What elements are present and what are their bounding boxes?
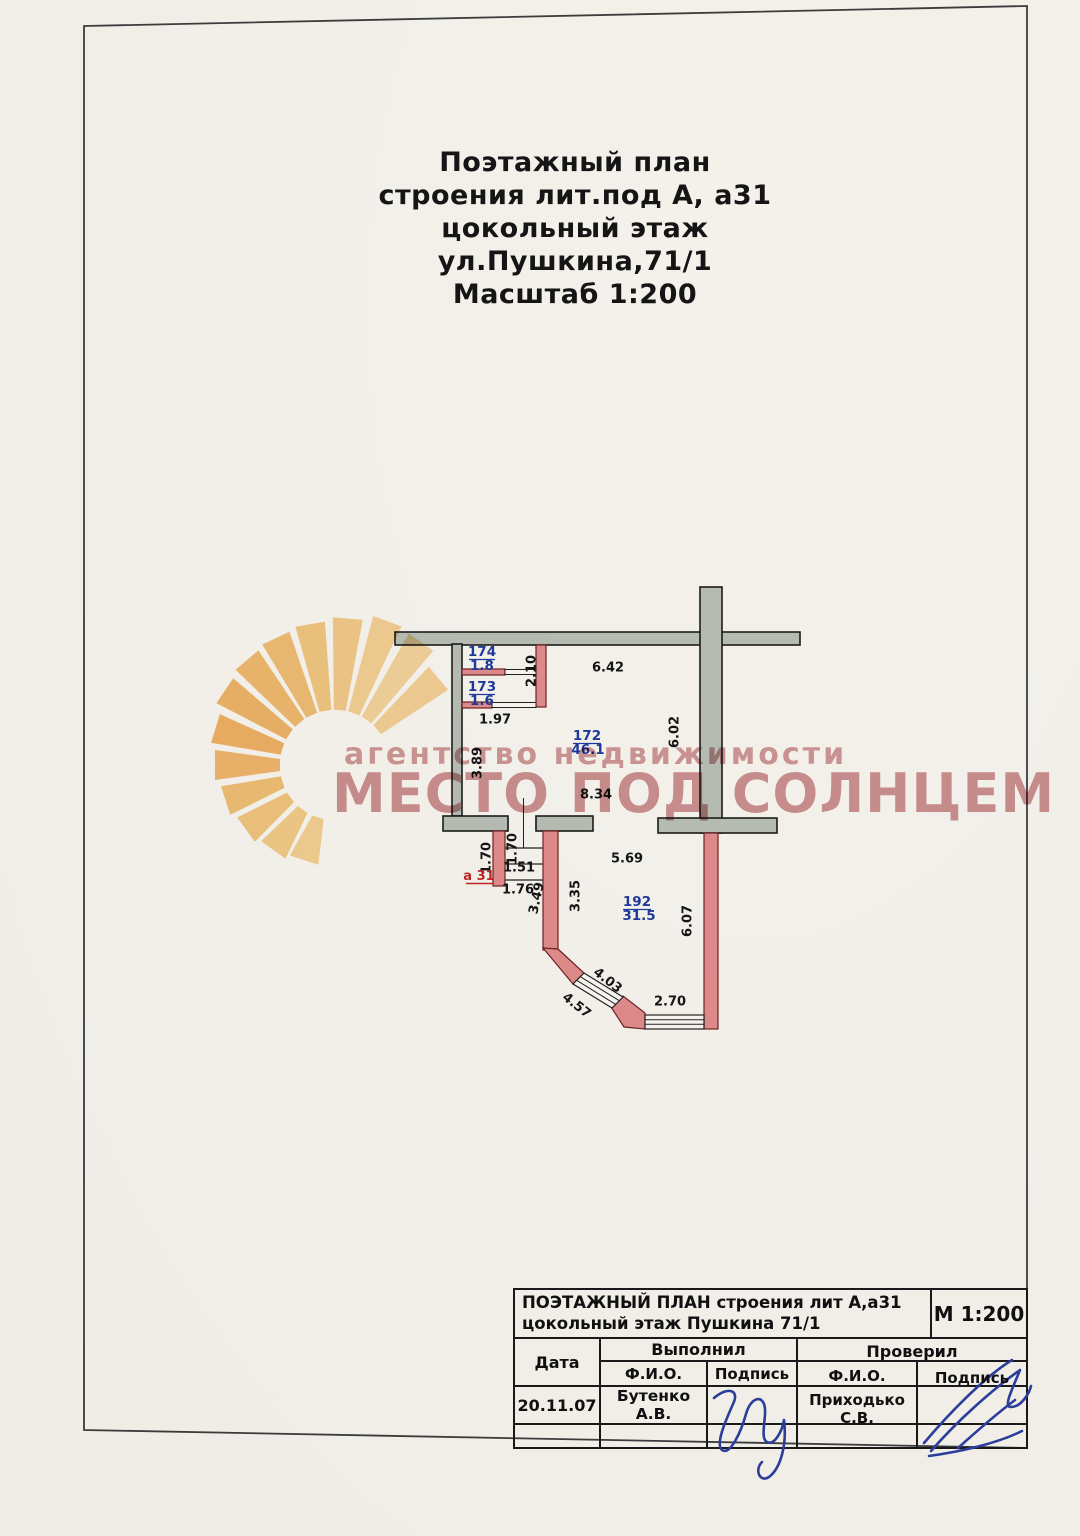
dim-2-70: 2.70: [654, 995, 686, 1010]
titleblock-fio-label-2: Ф.И.О.: [797, 1363, 917, 1388]
titleblock-scale: М 1:200: [931, 1289, 1027, 1338]
title-line-4: ул.Пушкина,71/1: [330, 245, 820, 278]
dim-3-35: 3.35: [569, 880, 584, 912]
titleblock-checked-label: Проверил: [797, 1340, 1027, 1363]
dim-6-42: 6.42: [592, 661, 624, 676]
room-area-172: 46.1: [571, 742, 604, 758]
wall-bottom-left-a: [443, 816, 508, 831]
title-line-2: строения лит.под А, а31: [330, 179, 820, 212]
room-area-174: 1.8: [470, 658, 494, 674]
wall-bottom-right: [658, 818, 777, 833]
scanned-floor-plan-page: 174 1.8 173 1.6 172 46.1 192 31.5 6.42 2…: [0, 0, 1080, 1536]
wall-bottom-left-b: [536, 816, 593, 831]
titleblock-title-line2: цокольный этаж Пушкина 71/1: [522, 1313, 924, 1334]
title-line-5: Масштаб 1:200: [330, 278, 820, 311]
dim-2-10: 2.10: [525, 655, 540, 687]
titleblock-date-value: 20.11.07: [514, 1386, 600, 1424]
dim-1-51: 1.51: [503, 861, 535, 876]
titleblock-checker-name: Приходько С.В.: [797, 1390, 917, 1428]
room-area-173: 1.6: [470, 693, 494, 709]
signature-executor: [714, 1391, 785, 1479]
titleblock-executed-label: Выполнил: [600, 1338, 797, 1361]
annex-label-text: а 31: [463, 869, 494, 884]
door-173: [492, 703, 536, 708]
annex-label: а 31: [463, 869, 494, 884]
entry-wall-left: [493, 831, 505, 886]
dim-8-34: 8.34: [580, 788, 612, 803]
room-area-192: 31.5: [622, 908, 655, 924]
titleblock-signature-label-2: Подпись: [917, 1365, 1027, 1390]
annex-wall-right: [704, 833, 718, 1029]
window-bottom: [645, 1015, 704, 1029]
dim-1-97: 1.97: [479, 713, 511, 728]
titleblock-date-label: Дата: [514, 1338, 600, 1386]
dim-6-02: 6.02: [668, 716, 683, 748]
titleblock-executor-name: Бутенко А.В.: [600, 1386, 707, 1424]
dim-5-69: 5.69: [611, 852, 643, 867]
title-line-3: цокольный этаж: [330, 212, 820, 245]
titleblock-title: ПОЭТАЖНЫЙ ПЛАН строения лит А,а31 цоколь…: [522, 1292, 924, 1336]
dim-3-89: 3.89: [471, 747, 486, 779]
title-line-1: Поэтажный план: [330, 146, 820, 179]
titleblock-title-line1: ПОЭТАЖНЫЙ ПЛАН строения лит А,а31: [522, 1292, 924, 1313]
wall-top: [395, 632, 800, 645]
titleblock-fio-label-1: Ф.И.О.: [600, 1361, 707, 1386]
document-title: Поэтажный план строения лит.под А, а31 ц…: [330, 146, 820, 311]
dim-6-07: 6.07: [681, 905, 696, 937]
dim-4-57: 4.57: [559, 990, 594, 1022]
wall-right-column: [700, 587, 722, 833]
wall-left: [452, 644, 462, 816]
titleblock-signature-label-1: Подпись: [707, 1361, 797, 1386]
